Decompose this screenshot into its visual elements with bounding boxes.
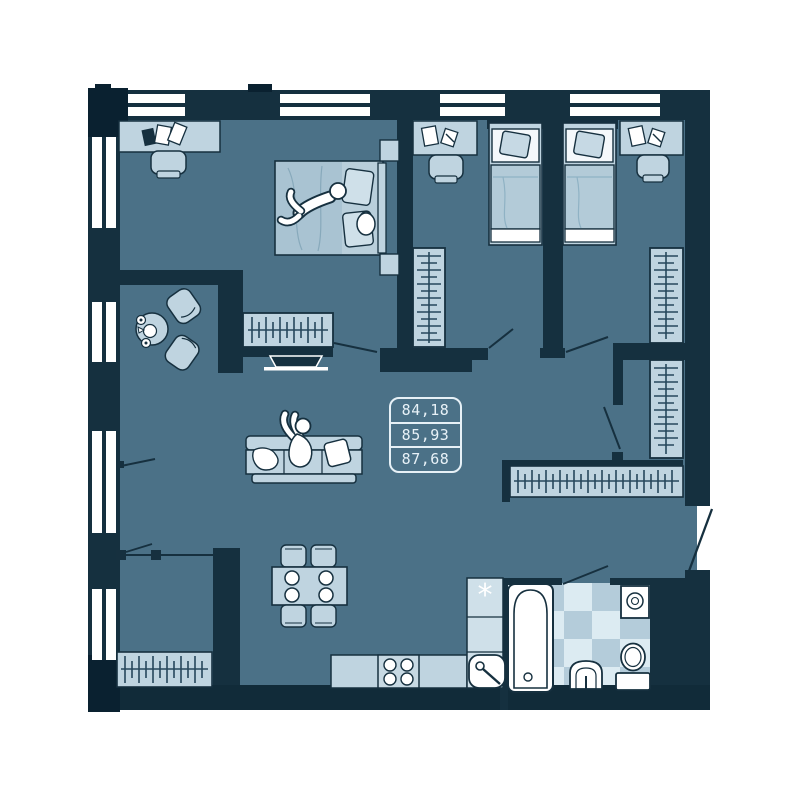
dining-chair [311,545,336,567]
master-wardrobe [243,313,333,347]
wall-corner-bottom-left [88,655,120,712]
tv [264,356,328,371]
nightstand [380,140,399,161]
dining-table [272,567,347,605]
bathtub [508,584,553,692]
wall-right-upper [685,90,710,506]
window [92,431,116,533]
dining-chair [281,545,306,567]
plate [319,588,333,602]
bathroom-sink [570,661,602,689]
area-value: 85,93 [391,422,460,447]
double-bed [275,140,399,275]
middle-wardrobe [413,248,445,347]
plate [285,571,299,585]
wall-marker [248,84,272,92]
fridge-symbol: * [476,578,494,613]
wall-hall-step [472,348,488,360]
closet-wardrobe [650,360,683,458]
wall-bathroom-top-b [610,578,685,585]
plate [285,588,299,602]
wall-marker [95,84,111,92]
hallway-wardrobe [510,466,683,497]
nightstand [380,254,399,275]
area-label: 84,18 85,93 87,68 [389,397,462,473]
wall-bathroom-right [650,585,685,685]
window [128,94,185,116]
pillow [499,131,531,159]
plate [319,571,333,585]
window [92,137,116,228]
wall-middle-right [543,120,563,348]
window [280,94,370,116]
entry-closet-wardrobe [117,652,212,687]
wall-door-post [540,348,565,358]
single-bed [561,120,618,245]
single-bed [487,120,544,245]
blanket [491,165,540,229]
stove [378,655,419,688]
window [92,589,116,660]
window [92,302,116,362]
dining-chair [281,605,306,627]
wall-lounge-right [218,270,243,373]
washing-machine [621,586,649,618]
window [570,94,660,116]
entry-threshold [685,506,697,570]
window [440,94,505,116]
pillow [342,168,374,206]
handbag [357,213,375,235]
wardrobe-frame-left [502,460,510,502]
kitchen-sink [469,655,505,688]
area-value: 84,18 [391,399,460,422]
wardrobe-frame-top [502,460,683,466]
dining-chair [311,605,336,627]
wall-rightroom-bottom [613,343,685,360]
right-wardrobe [650,248,683,343]
headboard [378,163,386,253]
wall-closet-left [613,348,623,405]
pillow [323,438,351,467]
wall-entry-closet [213,548,240,685]
floor-plan: * [0,0,800,800]
teapot [144,325,157,338]
wall-hall-top [380,348,472,372]
area-value: 87,68 [391,446,460,471]
